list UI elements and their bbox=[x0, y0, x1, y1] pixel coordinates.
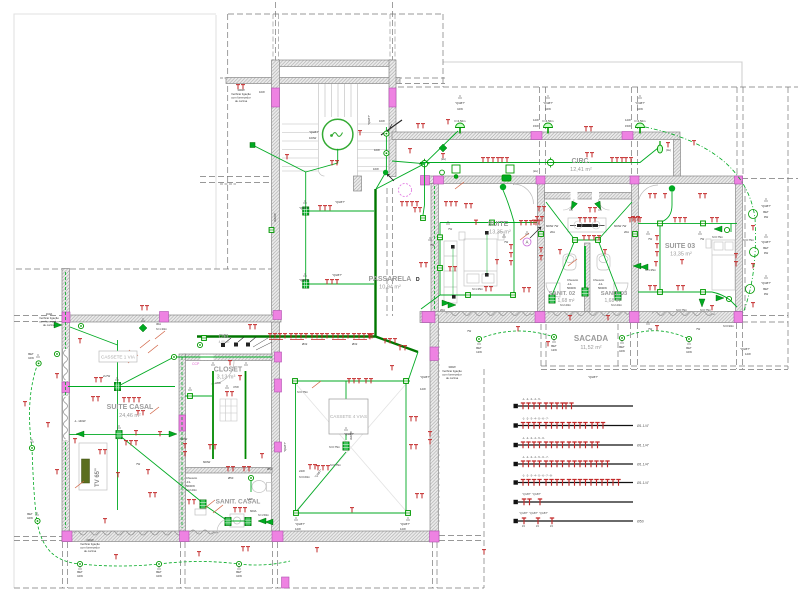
svg-text:5600W: 5600W bbox=[598, 286, 607, 290]
svg-text:CCP: CCP bbox=[192, 362, 200, 366]
svg-text:3x10W: 3x10W bbox=[273, 213, 277, 222]
svg-text:SUITE 03: SUITE 03 bbox=[665, 243, 695, 250]
svg-text:7W: 7W bbox=[700, 237, 705, 241]
svg-text:7W: 7W bbox=[467, 329, 472, 333]
svg-text:-1- -2- -3- -4- -5- -6- -7-: -1- -2- -3- -4- -5- -6- -7- bbox=[522, 417, 549, 421]
svg-text:12W: 12W bbox=[295, 527, 301, 531]
svg-text:SACADA: SACADA bbox=[574, 334, 608, 343]
svg-text:4,00 m²: 4,00 m² bbox=[219, 340, 230, 344]
svg-text:"QGBT": "QGBT" bbox=[420, 375, 430, 379]
svg-text:Ø1.1/4": Ø1.1/4" bbox=[637, 463, 650, 467]
svg-text:20A: 20A bbox=[624, 230, 629, 234]
svg-text:"QGBT": "QGBT" bbox=[455, 101, 465, 105]
svg-text:h=4.50m: h=4.50m bbox=[543, 119, 555, 123]
svg-text:10W: 10W bbox=[28, 356, 34, 360]
svg-text:"QGBT": "QGBT" bbox=[543, 101, 553, 105]
svg-text:-1- 140W: -1- 140W bbox=[74, 419, 86, 423]
svg-text:(3e): (3e) bbox=[666, 148, 671, 152]
svg-text:"QGBT": "QGBT" bbox=[299, 206, 309, 210]
svg-text:12W: 12W bbox=[400, 527, 406, 531]
svg-text:15W: 15W bbox=[625, 124, 631, 128]
svg-text:"QGBT": "QGBT" bbox=[295, 522, 305, 526]
svg-text:Ø50: Ø50 bbox=[637, 520, 644, 524]
svg-text:h=0.75m: h=0.75m bbox=[712, 235, 724, 239]
svg-text:de cortina: de cortina bbox=[84, 549, 97, 553]
svg-text:3,13 m³: 3,13 m³ bbox=[217, 375, 236, 381]
svg-text:SANIT. 02: SANIT. 02 bbox=[549, 291, 575, 297]
svg-text:10W: 10W bbox=[236, 574, 242, 578]
svg-text:12W: 12W bbox=[476, 350, 482, 354]
svg-text:h=0.75m: h=0.75m bbox=[297, 390, 309, 394]
svg-text:"QGBT": "QGBT" bbox=[761, 281, 771, 285]
svg-text:9W: 9W bbox=[764, 292, 769, 296]
svg-text:h=2.20m: h=2.20m bbox=[611, 303, 623, 307]
svg-text:PASSARELA: PASSARELA bbox=[369, 276, 412, 283]
svg-text:h=0.75m: h=0.75m bbox=[743, 238, 755, 242]
svg-text:10W: 10W bbox=[77, 574, 83, 578]
svg-text:SANIT. 03: SANIT. 03 bbox=[601, 291, 628, 297]
svg-text:10W: 10W bbox=[457, 107, 463, 111]
svg-text:2x7W: 2x7W bbox=[103, 374, 111, 378]
svg-text:h=0.75m: h=0.75m bbox=[700, 308, 712, 312]
svg-text:h=2.20m: h=2.20m bbox=[186, 488, 198, 492]
svg-text:600W 7W: 600W 7W bbox=[546, 224, 559, 228]
svg-text:h=0.90m: h=0.90m bbox=[723, 324, 735, 328]
svg-text:Ø32: Ø32 bbox=[352, 342, 358, 346]
svg-text:13,35 m²: 13,35 m² bbox=[489, 230, 511, 236]
svg-text:"QGBT": "QGBT" bbox=[740, 347, 750, 351]
svg-text:CIRC.: CIRC. bbox=[571, 158, 590, 165]
svg-text:-1- -2- -3- -4- -5- -6- -7- -8: -1- -2- -3- -4- -5- -6- -7- -8- bbox=[522, 474, 553, 478]
svg-text:Ø1.1/4": Ø1.1/4" bbox=[637, 481, 650, 485]
svg-text:100W: 100W bbox=[309, 136, 317, 140]
svg-text:"QGBT": "QGBT" bbox=[309, 130, 319, 134]
svg-text:10W: 10W bbox=[545, 107, 551, 111]
svg-text:h=1.35m: h=1.35m bbox=[645, 268, 657, 272]
svg-text:24W: 24W bbox=[299, 469, 305, 473]
svg-text:D: D bbox=[416, 277, 420, 283]
svg-text:7W: 7W bbox=[696, 327, 701, 331]
svg-text:10,94 m²: 10,94 m² bbox=[379, 285, 401, 291]
svg-text:"QGBT": "QGBT" bbox=[335, 200, 345, 204]
svg-text:BET: BET bbox=[763, 287, 769, 291]
svg-text:de cortina: de cortina bbox=[235, 99, 248, 103]
svg-text:14W: 14W bbox=[247, 497, 253, 501]
svg-text:10W: 10W bbox=[259, 90, 265, 94]
svg-text:de cortina: de cortina bbox=[446, 376, 459, 380]
svg-text:BET: BET bbox=[763, 210, 769, 214]
svg-text:A: A bbox=[419, 162, 421, 166]
svg-text:"QGBT" "QGBT": "QGBT" "QGBT" bbox=[522, 492, 541, 496]
svg-text:-1- -2- -3- -4- -5-: -1- -2- -3- -4- -5- bbox=[522, 397, 541, 401]
svg-text:h=1.50m: h=1.50m bbox=[258, 513, 270, 517]
svg-text:"QGBT": "QGBT" bbox=[400, 522, 410, 526]
svg-text:h=0.75m: h=0.75m bbox=[330, 463, 342, 467]
svg-text:24,46 m²: 24,46 m² bbox=[119, 413, 141, 419]
svg-text:de cortina: de cortina bbox=[43, 323, 56, 327]
svg-text:h=4.50m: h=4.50m bbox=[635, 119, 647, 123]
svg-text:7W: 7W bbox=[430, 243, 435, 247]
svg-text:11,52 m²: 11,52 m² bbox=[580, 345, 601, 351]
svg-text:47W: 47W bbox=[233, 385, 239, 389]
svg-text:-1- -2- -3- -4- -5- -6- -7-: -1- -2- -3- -4- -5- -6- -7- bbox=[522, 455, 549, 459]
svg-text:"QGBT": "QGBT" bbox=[761, 240, 771, 244]
svg-text:h=0.60m: h=0.60m bbox=[299, 475, 311, 479]
svg-text:10W: 10W bbox=[619, 349, 625, 353]
svg-text:CASSETE 4 VIAS: CASSETE 4 VIAS bbox=[330, 414, 367, 419]
svg-text:10W: 10W bbox=[374, 148, 380, 152]
svg-text:(2e): (2e) bbox=[441, 157, 446, 161]
svg-text:Ø32: Ø32 bbox=[302, 342, 308, 346]
svg-text:10W: 10W bbox=[379, 119, 385, 123]
svg-text:Ø1.1/4": Ø1.1/4" bbox=[637, 424, 650, 428]
svg-text:20A: 20A bbox=[550, 230, 555, 234]
svg-text:7W: 7W bbox=[648, 327, 653, 331]
svg-text:12W: 12W bbox=[625, 118, 631, 122]
svg-text:9W: 9W bbox=[764, 251, 769, 255]
svg-text:47W: 47W bbox=[215, 381, 221, 385]
svg-text:h=0.75m: h=0.75m bbox=[329, 445, 341, 449]
svg-text:h=1.30m: h=1.30m bbox=[156, 327, 168, 331]
svg-text:7W: 7W bbox=[504, 240, 509, 244]
svg-text:"QGBT": "QGBT" bbox=[283, 442, 287, 452]
svg-text:"QGBT": "QGBT" bbox=[588, 375, 598, 379]
svg-text:Ø50: Ø50 bbox=[228, 476, 234, 480]
svg-text:600W: 600W bbox=[203, 460, 211, 464]
svg-text:(2e): (2e) bbox=[533, 169, 538, 173]
svg-text:20A: 20A bbox=[440, 308, 445, 312]
svg-text:12W: 12W bbox=[533, 118, 539, 122]
svg-text:"QGBT": "QGBT" bbox=[332, 273, 342, 277]
svg-text:"QGBT": "QGBT" bbox=[299, 278, 309, 282]
svg-text:16W: 16W bbox=[373, 167, 379, 171]
svg-text:600W 7W: 600W 7W bbox=[614, 224, 627, 228]
svg-text:600A: 600A bbox=[250, 509, 257, 513]
svg-text:"QGBT": "QGBT" bbox=[635, 101, 645, 105]
svg-text:"QGBT": "QGBT" bbox=[367, 115, 371, 125]
svg-text:3x10W: 3x10W bbox=[349, 431, 353, 440]
svg-text:CASSETE 1 VIA: CASSETE 1 VIA bbox=[101, 355, 136, 360]
svg-text:7W: 7W bbox=[448, 227, 453, 231]
svg-text:CLOSET: CLOSET bbox=[214, 367, 243, 374]
svg-text:h=1.35m: h=1.35m bbox=[472, 287, 484, 291]
svg-text:5600W: 5600W bbox=[567, 286, 576, 290]
svg-text:SUITE CASAL: SUITE CASAL bbox=[107, 404, 154, 411]
svg-text:900W: 900W bbox=[180, 437, 188, 441]
svg-text:TV 65": TV 65" bbox=[95, 468, 101, 487]
svg-text:Ø50: Ø50 bbox=[267, 467, 273, 471]
svg-text:h=4.50m: h=4.50m bbox=[455, 119, 467, 123]
svg-text:12,41 m²: 12,41 m² bbox=[570, 167, 592, 173]
svg-text:15W: 15W bbox=[533, 124, 539, 128]
svg-text:"QGBT": "QGBT" bbox=[761, 204, 771, 208]
svg-text:SANIT. CASAL: SANIT. CASAL bbox=[216, 499, 261, 506]
svg-text:h=2.20m: h=2.20m bbox=[560, 303, 572, 307]
svg-text:h=0.75m: h=0.75m bbox=[676, 308, 688, 312]
svg-text:-1- -2- -3- -4- -5- -6-: -1- -2- -3- -4- -5- -6- bbox=[522, 436, 545, 440]
svg-text:12W: 12W bbox=[745, 352, 751, 356]
svg-text:10W: 10W bbox=[686, 350, 692, 354]
svg-text:Ø1.1/4": Ø1.1/4" bbox=[637, 444, 650, 448]
svg-text:10W: 10W bbox=[637, 107, 643, 111]
svg-text:SUITE: SUITE bbox=[488, 221, 509, 228]
svg-text:7W: 7W bbox=[648, 237, 653, 241]
svg-text:9W: 9W bbox=[764, 215, 769, 219]
svg-text:BET: BET bbox=[763, 246, 769, 250]
svg-text:13,35 m²: 13,35 m² bbox=[670, 252, 692, 258]
svg-text:A: A bbox=[526, 240, 529, 245]
svg-text:10W: 10W bbox=[27, 516, 33, 520]
svg-text:12W: 12W bbox=[551, 348, 557, 352]
svg-text:30A: 30A bbox=[156, 322, 161, 326]
svg-text:"QGBT" "QGBT" "QGBT": "QGBT" "QGBT" "QGBT" bbox=[519, 511, 548, 515]
svg-text:7W: 7W bbox=[136, 462, 141, 466]
svg-text:10W: 10W bbox=[156, 574, 162, 578]
svg-text:12W: 12W bbox=[420, 387, 426, 391]
